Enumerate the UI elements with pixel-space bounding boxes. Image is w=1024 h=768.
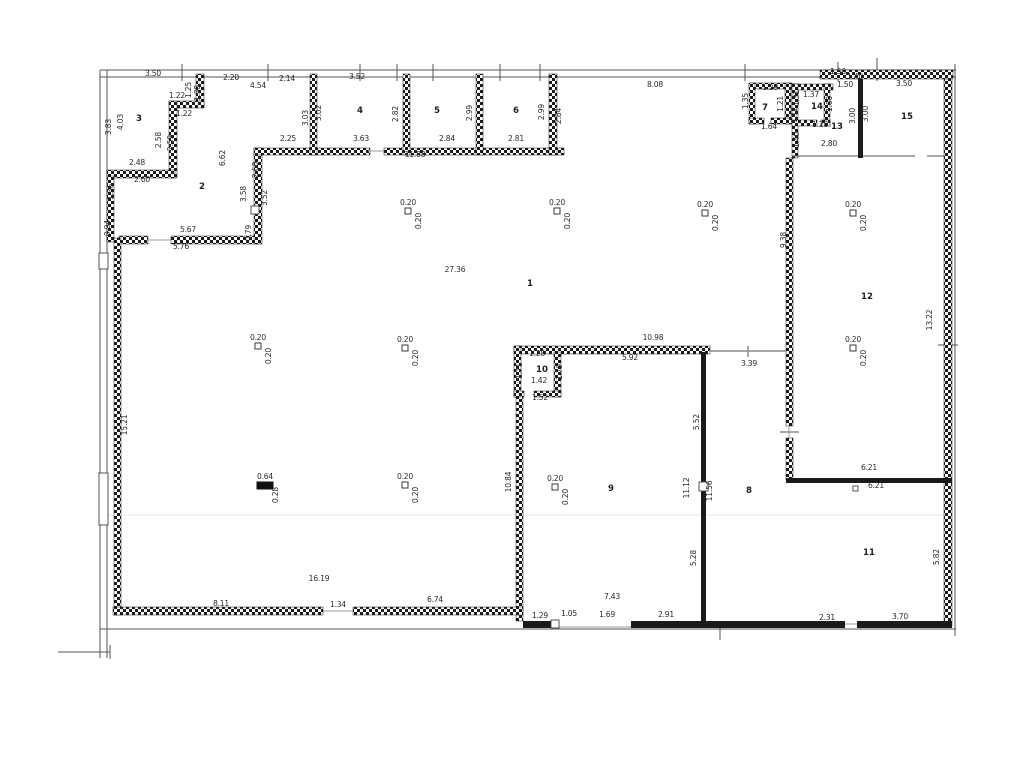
dimension-label: 11.12 — [682, 477, 691, 498]
dimension-label: 6.21 — [868, 481, 884, 490]
column-size-label: 0.20 — [845, 335, 861, 344]
column-size-label: 0.20 — [859, 350, 868, 366]
dimension-label: 8.11 — [213, 599, 229, 608]
dimension-label: 2.31 — [819, 613, 835, 622]
dimension-label: 5.52 — [692, 414, 701, 430]
room-number-label: 1 — [527, 279, 533, 289]
dimension-label: 2.84 — [554, 108, 563, 124]
room-number-label: 2 — [199, 182, 205, 192]
dimension-label: 3.63 — [353, 134, 369, 143]
column-marker — [850, 210, 856, 216]
dimension-label: 1.79 — [555, 364, 564, 380]
dimension-label: 1.05 — [561, 609, 577, 618]
dimension-label: 2.14 — [279, 74, 295, 83]
dimension-label: 1.50 — [837, 80, 853, 89]
dimension-label: 6.62 — [218, 150, 227, 166]
dimension-label: 3.39 — [741, 359, 757, 368]
dimension-label: 3.58 — [239, 186, 248, 202]
column-marker — [850, 345, 856, 351]
column-marker — [402, 482, 408, 488]
dimension-label: 1.60 — [825, 96, 834, 112]
dimension-label: 4.54 — [250, 81, 266, 90]
dimension-label: 1.25 — [184, 82, 193, 98]
dimension-label: 10.84 — [504, 471, 513, 492]
room-number-label: 7 — [762, 103, 768, 113]
room-number-label: 6 — [513, 106, 519, 116]
dimension-label: 3.52 — [349, 72, 365, 81]
dimension-label: 2.84 — [439, 134, 455, 143]
dimension-label: 1.29 — [532, 611, 548, 620]
dimension-label: 5.92 — [622, 353, 638, 362]
room-number-label: 5 — [434, 106, 440, 116]
dimension-label: 5.76 — [173, 242, 189, 251]
dimension-label: 13.22 — [925, 309, 934, 330]
column-size-label: 0.20 — [250, 333, 266, 342]
dimension-label: 2.48 — [129, 158, 145, 167]
dimension-label: 1.20 — [812, 120, 828, 129]
dimension-label: 3.70 — [892, 612, 908, 621]
dimension-label: 1.31 — [792, 90, 801, 106]
dimension-label: 5.28 — [689, 550, 698, 566]
dimension-label: 1.64 — [761, 122, 777, 131]
room-number-label: 8 — [746, 486, 752, 496]
column-marker — [702, 210, 708, 216]
column-size-label: 0.20 — [711, 215, 720, 231]
dimension-label: 6.21 — [861, 463, 877, 472]
column-size-label: 0.20 — [414, 213, 423, 229]
column-size-label: 0.20 — [400, 198, 416, 207]
dimension-label: 1.71 — [515, 363, 524, 379]
dimension-label: 3.00 — [848, 108, 857, 124]
dimension-label: 10.98 — [643, 333, 664, 342]
dimension-label: 2.20 — [223, 73, 239, 82]
room-number-label: 9 — [608, 484, 614, 494]
column-size-label: 0.20 — [264, 348, 273, 364]
column-size-label: 0.20 — [697, 200, 713, 209]
dimension-label: 1.40 — [792, 132, 801, 148]
square-column-icon — [402, 345, 408, 351]
room-number-label: 14 — [811, 102, 823, 112]
dimension-label: 6.74 — [427, 595, 443, 604]
column-marker — [552, 484, 558, 490]
dimension-label: 2.58 — [154, 132, 163, 148]
dimension-label: 8.08 — [647, 80, 663, 89]
square-column-icon — [850, 345, 856, 351]
dimension-label: 2.99 — [465, 105, 474, 121]
wall-markers — [99, 206, 858, 628]
dimension-label: 5.67 — [180, 225, 196, 234]
square-column-icon — [405, 208, 411, 214]
room-number-label: 10 — [536, 365, 548, 375]
dimension-label: 1.22 — [169, 91, 185, 100]
column-size-label: 0.64 — [257, 472, 273, 481]
column-marker — [405, 208, 411, 214]
dimension-label: 2.91 — [658, 610, 674, 619]
room-number-label: 11 — [863, 548, 875, 558]
dimension-label: 1.38 — [193, 85, 202, 101]
dimension-label: 2.81 — [508, 134, 524, 143]
dimension-label: 1.37 — [803, 90, 819, 99]
column-marker — [402, 345, 408, 351]
dimension-label: 15.21 — [120, 414, 129, 435]
column-size-label: 0.20 — [411, 487, 420, 503]
dimension-label: 1.35 — [741, 93, 750, 109]
dimension-label: 2.82 — [391, 106, 400, 122]
floor-plan-canvas: 0.200.200.200.200.200.200.200.200.200.20… — [0, 0, 1024, 768]
door-openings — [147, 151, 857, 627]
dimension-label: 1.36 — [106, 184, 115, 200]
dimension-label: 2.60 — [251, 162, 260, 178]
dimension-label: 3.02 — [314, 105, 323, 121]
room-number-label: 4 — [357, 106, 363, 116]
dimension-label: 2.80 — [821, 139, 837, 148]
dimension-label: 2.99 — [537, 104, 546, 120]
room-number-label: 12 — [861, 292, 873, 302]
dimension-label: 1.52 — [532, 393, 548, 402]
dimension-label: 1.29 — [762, 83, 778, 92]
column-size-label: 0.20 — [845, 200, 861, 209]
square-column-icon — [554, 208, 560, 214]
square-column-icon — [702, 210, 708, 216]
dimension-label: 11.56 — [705, 480, 714, 501]
column-size-label: 0.20 — [859, 215, 868, 231]
room-number-label: 13 — [831, 122, 843, 132]
column-marker — [554, 208, 560, 214]
dimension-label: 1.42 — [531, 376, 547, 385]
dimension-label: 3.50 — [145, 69, 161, 78]
square-column-icon — [552, 484, 558, 490]
dimension-label: 1.50 — [830, 67, 846, 76]
dimension-label: 1.69 — [599, 610, 615, 619]
square-column-icon — [402, 482, 408, 488]
room-number-label: 3 — [136, 114, 142, 124]
dimension-label: 3.83 — [104, 119, 113, 135]
dimension-label: 7.43 — [604, 592, 620, 601]
dimension-label: 4.03 — [116, 114, 125, 130]
dimension-label: 11.88 — [405, 150, 426, 159]
column-size-label: 0.28 — [271, 487, 280, 503]
dimension-label: 9.38 — [779, 232, 788, 248]
dimension-label: 1.12 — [790, 107, 799, 123]
dimension-label: 1.28 — [529, 349, 545, 358]
column-size-label: 0.20 — [549, 198, 565, 207]
dimension-label: 1.21 — [776, 96, 785, 112]
dimension-label: 2.25 — [280, 134, 296, 143]
hatched-walls — [107, 70, 953, 626]
square-column-icon — [255, 343, 261, 349]
dimension-label: 2.59 — [166, 135, 175, 151]
dimension-label: 3.00 — [861, 106, 870, 122]
dimension-label: 16.19 — [309, 574, 330, 583]
dimension-label: 3.50 — [896, 79, 912, 88]
dimension-label: 5.82 — [932, 549, 941, 565]
column-size-label: 0.20 — [561, 489, 570, 505]
column-size-label: 0.20 — [547, 474, 563, 483]
column-size-label: 0.20 — [397, 472, 413, 481]
dimension-label: 0.79 — [244, 225, 253, 241]
dimension-label: 3.03 — [301, 110, 310, 126]
dimension-label: 1.22 — [176, 109, 192, 118]
column-size-label: 0.20 — [397, 335, 413, 344]
dimension-label: 2.60 — [134, 175, 150, 184]
square-column-icon — [850, 210, 856, 216]
dimension-label: 0.94 — [103, 220, 112, 236]
column-marker — [255, 343, 261, 349]
dimension-label: 27.36 — [445, 265, 466, 274]
column-size-label: 0.20 — [563, 213, 572, 229]
room-number-label: 15 — [901, 112, 913, 122]
dimension-label: 1.34 — [330, 600, 346, 609]
dimension-label: 3.52 — [260, 190, 269, 206]
column-size-label: 0.20 — [411, 350, 420, 366]
